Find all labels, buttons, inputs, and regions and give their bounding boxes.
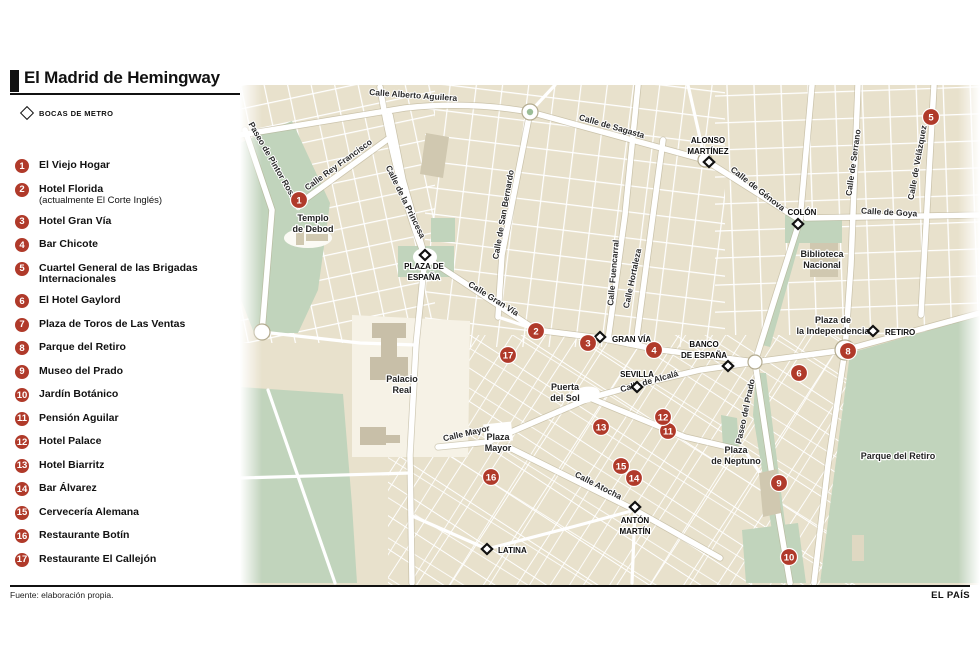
place-label: Biblioteca	[800, 249, 844, 259]
armeria-building-2	[386, 435, 400, 443]
legend-item: 6El Hotel Gaylord	[14, 292, 232, 309]
infographic-madrid-hemingway: El Madrid de Hemingway BOCAS DE METRO 1E…	[0, 0, 980, 656]
marker-number: 13	[596, 422, 607, 433]
metro-station-label: DE ESPAÑA	[681, 351, 727, 360]
place-label: Mayor	[485, 443, 512, 453]
map-marker-2: 2	[528, 323, 545, 340]
map-marker-14: 14	[626, 470, 643, 487]
legend-item: 1El Viejo Hogar	[14, 157, 232, 174]
templo-de-debod-building-2	[306, 234, 328, 241]
madrid-map: Calle Alberto AguileraPaseo de Pintor Ro…	[240, 85, 980, 585]
place-label: Palacio	[386, 374, 418, 384]
publisher-logo: EL PAÍS	[931, 590, 970, 601]
legend-number-badge: 17	[14, 552, 30, 568]
legend-list: 1El Viejo Hogar2Hotel Florida(actualment…	[14, 157, 232, 568]
marker-number: 5	[928, 112, 934, 123]
legend-number-badge: 8	[14, 340, 30, 356]
page-title: El Madrid de Hemingway	[24, 68, 220, 88]
map-marker-15: 15	[613, 458, 630, 475]
metro-legend: BOCAS DE METRO	[22, 108, 113, 118]
map-marker-10: 10	[781, 549, 798, 566]
marker-number: 9	[776, 478, 781, 489]
metro-station-label: BANCO	[689, 340, 718, 349]
legend-sublabel: (actualmente El Corte Inglés)	[39, 195, 211, 206]
retiro-building	[852, 535, 864, 561]
legend-label: Restaurante El Callejón	[39, 551, 211, 566]
map-marker-5: 5	[923, 109, 940, 126]
marker-number: 10	[784, 552, 795, 563]
legend-number-badge: 14	[14, 481, 30, 497]
legend-number-badge: 2	[14, 182, 30, 198]
legend-label: El Hotel Gaylord	[39, 292, 211, 307]
metro-legend-label: BOCAS DE METRO	[39, 109, 113, 118]
legend-item: 5Cuartel General de las Brigadas Interna…	[14, 260, 232, 286]
place-label: Puerta	[551, 382, 580, 392]
legend-label: Cuartel General de las Brigadas Internac…	[39, 260, 211, 286]
legend-number-badge: 6	[14, 293, 30, 309]
legend-number-badge: 3	[14, 214, 30, 230]
marker-number: 1	[296, 195, 302, 206]
marker-number: 8	[845, 346, 850, 357]
legend-item: 13Hotel Biarritz	[14, 457, 232, 474]
legend-number-badge: 10	[14, 387, 30, 403]
metro-station-label: ALONSO	[691, 136, 725, 145]
place-label: Plaza	[724, 445, 748, 455]
legend-label: Bar Chicote	[39, 236, 211, 251]
map-marker-6: 6	[791, 365, 808, 382]
right-edge-fade	[958, 85, 980, 585]
marker-number: 17	[503, 350, 514, 361]
map-marker-8: 8	[840, 343, 857, 360]
map-marker-12: 12	[655, 409, 672, 426]
metro-station-label: SEVILLA	[620, 370, 654, 379]
legend-item: 15Cervecería Alemana	[14, 504, 232, 521]
marker-number: 2	[533, 326, 538, 337]
legend-item: 12Hotel Palace	[14, 433, 232, 450]
legend-number-badge: 1	[14, 158, 30, 174]
legend-label: Pensión Aguilar	[39, 410, 211, 425]
legend-label: Jardín Botánico	[39, 386, 211, 401]
legend-label: Hotel Gran Vía	[39, 213, 211, 228]
marker-number: 12	[658, 412, 669, 423]
legend-number-badge: 13	[14, 458, 30, 474]
legend-item: 10Jardín Botánico	[14, 386, 232, 403]
legend-number-badge: 12	[14, 434, 30, 450]
title-accent-bar	[10, 70, 19, 92]
legend-item: 2Hotel Florida(actualmente El Corte Ingl…	[14, 181, 232, 207]
legend-item: 14Bar Álvarez	[14, 480, 232, 497]
map-marker-1: 1	[291, 192, 308, 209]
legend-label: Restaurante Botín	[39, 527, 211, 542]
legend-label: Bar Álvarez	[39, 480, 211, 495]
metro-station-label: ANTÓN	[621, 516, 650, 525]
legend-label: Cervecería Alemana	[39, 504, 211, 519]
legend-number-badge: 16	[14, 528, 30, 544]
metro-station-label: PLAZA DE	[404, 262, 444, 271]
map-marker-4: 4	[646, 342, 663, 359]
legend-label: El Viejo Hogar	[39, 157, 211, 172]
marker-number: 11	[663, 426, 674, 437]
legend-item: 8Parque del Retiro	[14, 339, 232, 356]
legend-item: 9Museo del Prado	[14, 363, 232, 380]
marker-number: 6	[796, 368, 801, 379]
place-label: de Neptuno	[711, 456, 761, 466]
place-label: Plaza	[486, 432, 510, 442]
place-label: Real	[392, 385, 411, 395]
marker-number: 15	[616, 461, 627, 472]
metro-station-label: COLÓN	[788, 208, 817, 217]
legend-label: Hotel Florida(actualmente El Corte Inglé…	[39, 181, 211, 207]
metro-station-label: RETIRO	[885, 328, 915, 337]
place-label: Parque del Retiro	[861, 451, 936, 461]
place-label: Nacional	[803, 260, 841, 270]
legend-item: 3Hotel Gran Vía	[14, 213, 232, 230]
legend-label: Hotel Biarritz	[39, 457, 211, 472]
map-marker-16: 16	[483, 469, 500, 486]
map-marker-9: 9	[771, 475, 788, 492]
legend-number-badge: 11	[14, 411, 30, 427]
title-divider	[10, 93, 247, 95]
plaza-espana-garden-2	[431, 218, 455, 242]
marker-number: 14	[629, 473, 640, 484]
metro-station-label: MARTÍNEZ	[687, 147, 728, 156]
legend-item: 11Pensión Aguilar	[14, 410, 232, 427]
metro-station-label: ESPAÑA	[408, 273, 441, 282]
source-note: Fuente: elaboración propia.	[10, 590, 114, 600]
legend-item: 17Restaurante El Callejón	[14, 551, 232, 568]
place-label: del Sol	[550, 393, 580, 403]
marker-number: 3	[585, 338, 590, 349]
legend-item: 16Restaurante Botín	[14, 527, 232, 544]
legend-item: 4Bar Chicote	[14, 236, 232, 253]
map-marker-13: 13	[593, 419, 610, 436]
place-label: Plaza de	[815, 315, 851, 325]
legend-label: Museo del Prado	[39, 363, 211, 378]
legend-number-badge: 15	[14, 505, 30, 521]
place-label: de Debod	[292, 224, 333, 234]
legend-number-badge: 5	[14, 261, 30, 277]
legend-item: 7Plaza de Toros de Las Ventas	[14, 316, 232, 333]
legend-number-badge: 9	[14, 364, 30, 380]
map-container: Calle Alberto AguileraPaseo de Pintor Ro…	[240, 85, 980, 585]
armeria-building	[360, 427, 386, 445]
place-label: la Independencia	[796, 326, 870, 336]
map-marker-3: 3	[580, 335, 597, 352]
legend-label: Hotel Palace	[39, 433, 211, 448]
metro-station-label: LATINA	[498, 546, 527, 555]
map-marker-17: 17	[500, 347, 517, 364]
metro-station-label: MARTÍN	[619, 527, 650, 536]
place-label: Templo	[297, 213, 329, 223]
marker-number: 4	[651, 345, 657, 356]
metro-diamond-icon	[20, 106, 34, 120]
metro-station-label: GRAN VÍA	[612, 335, 651, 344]
legend-number-badge: 7	[14, 317, 30, 333]
legend-label: Plaza de Toros de Las Ventas	[39, 316, 211, 331]
legend-number-badge: 4	[14, 237, 30, 253]
left-edge-fade	[240, 85, 262, 585]
legend-label: Parque del Retiro	[39, 339, 211, 354]
marker-number: 16	[486, 472, 497, 483]
footer-divider	[10, 585, 970, 587]
